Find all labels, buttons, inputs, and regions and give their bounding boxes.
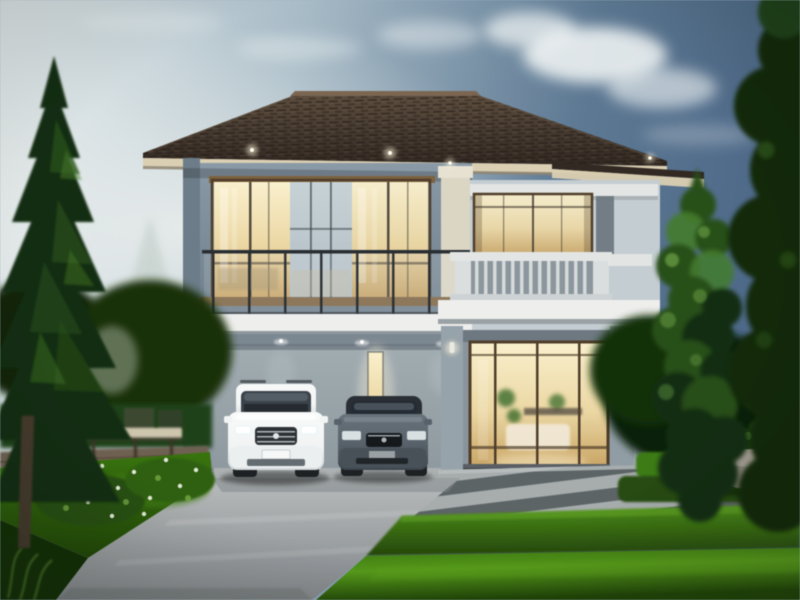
vignette-overlay [0, 0, 800, 600]
architectural-rendering-photo [0, 0, 800, 600]
rendering-canvas [0, 0, 800, 600]
